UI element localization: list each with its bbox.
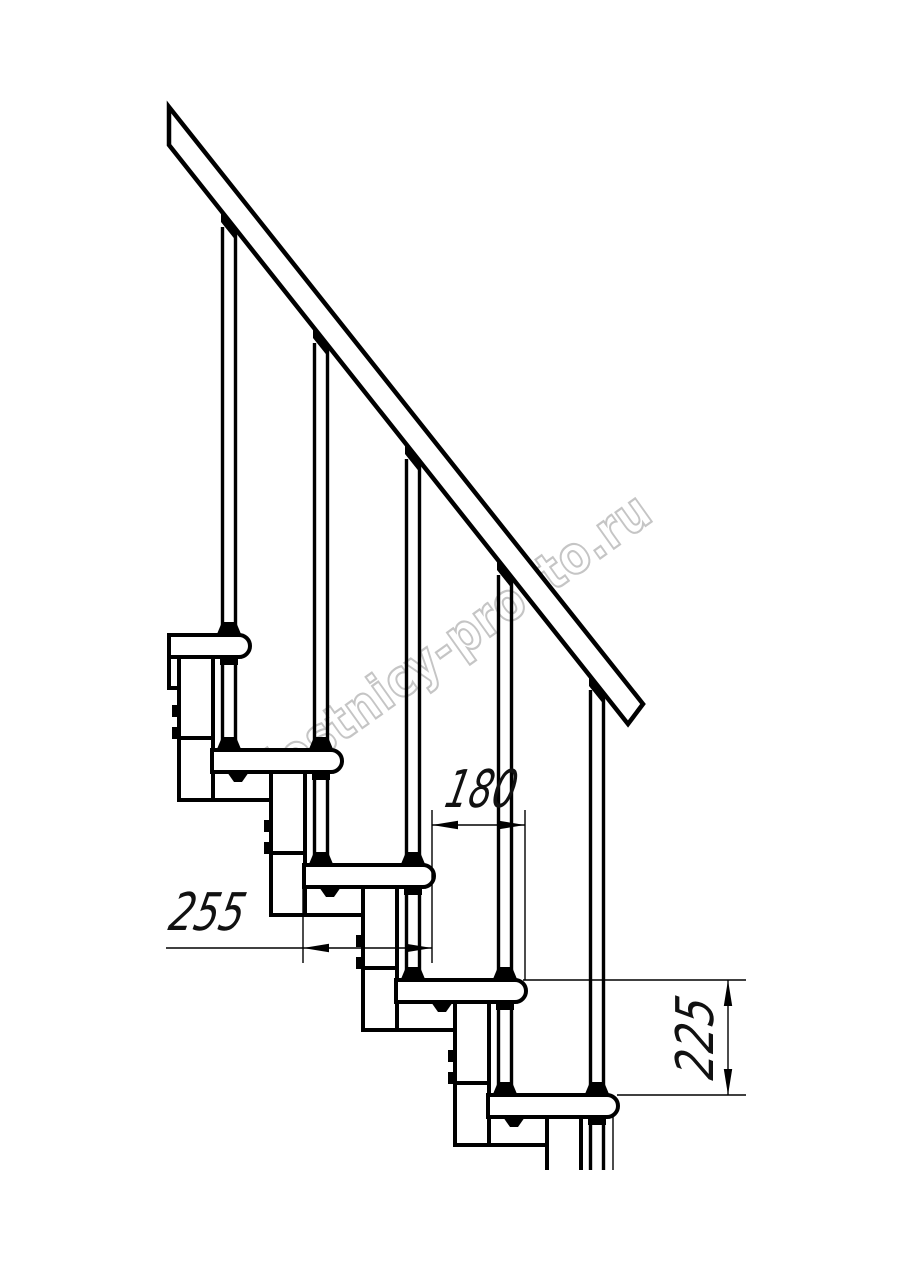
tread-1 xyxy=(169,635,250,657)
bolt-icon xyxy=(264,842,272,854)
arrow-up-icon xyxy=(724,980,732,1006)
support-rod-2 xyxy=(315,776,328,863)
rod-foot-icon xyxy=(217,737,241,749)
baluster-1 xyxy=(223,227,236,635)
rod-collar-icon xyxy=(220,656,238,665)
dimension-label-255: 255 xyxy=(164,883,251,943)
tread-bolt-icon xyxy=(503,1117,525,1127)
bolt-icon xyxy=(356,935,364,947)
dimension-label-225: 225 xyxy=(666,991,726,1084)
support-rod-4 xyxy=(499,1006,512,1093)
rod-collar-icon xyxy=(588,1116,606,1125)
support-rod-5 xyxy=(591,1121,604,1170)
bolt-icon xyxy=(264,820,272,832)
staircase-technical-drawing: lestnicy-prosto.ru xyxy=(0,0,914,1280)
tread-3 xyxy=(304,865,434,887)
bolt-icon xyxy=(172,705,180,717)
dimension-rise-225: 225 xyxy=(523,980,746,1095)
arrow-left-icon xyxy=(303,944,329,952)
rod-foot-icon xyxy=(309,852,333,864)
arrow-left-icon xyxy=(432,821,458,829)
tread-5 xyxy=(488,1095,618,1117)
bolt-icon xyxy=(448,1050,456,1062)
rod-collar-icon xyxy=(312,771,330,780)
tread-bolt-icon xyxy=(431,1002,453,1012)
bolt-icon xyxy=(172,727,180,739)
rod-collar-icon xyxy=(496,1001,514,1010)
baluster-foot-icon xyxy=(585,1082,609,1094)
tread-bolt-icon xyxy=(319,887,341,897)
bolt-icon xyxy=(448,1072,456,1084)
tread-2 xyxy=(212,750,342,772)
baluster-foot-icon xyxy=(493,967,517,979)
bolt-icon xyxy=(356,957,364,969)
rod-foot-icon xyxy=(401,967,425,979)
support-rod-3 xyxy=(407,891,420,978)
rod-foot-icon xyxy=(493,1082,517,1094)
baluster-foot-icon xyxy=(401,852,425,864)
baluster-5 xyxy=(591,690,604,1095)
baluster-2 xyxy=(315,343,328,750)
dimension-label-180: 180 xyxy=(440,760,523,820)
tread-4 xyxy=(396,980,526,1002)
drawing-canvas: lestnicy-prosto.ru xyxy=(0,0,914,1280)
support-rod-1 xyxy=(223,661,236,748)
rod-collar-icon xyxy=(404,886,422,895)
module-box-5 xyxy=(547,1115,581,1170)
tread-bolt-icon xyxy=(227,772,249,782)
baluster-foot-icon xyxy=(217,622,241,634)
